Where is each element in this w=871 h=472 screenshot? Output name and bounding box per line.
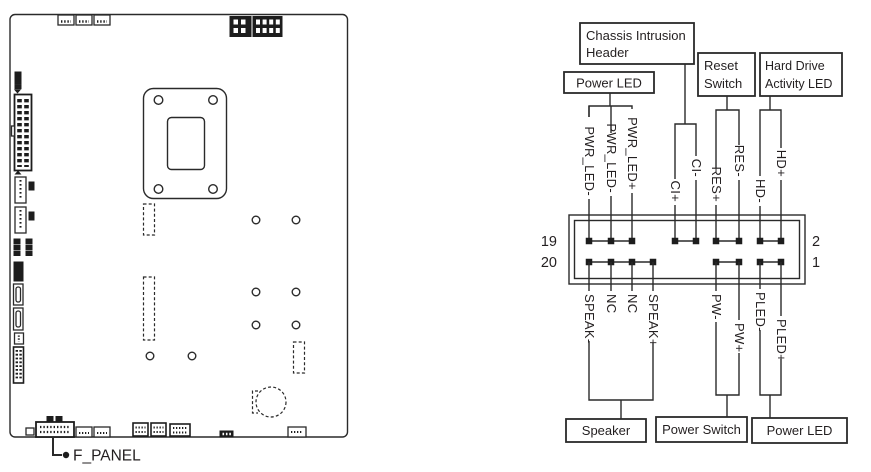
- usb-header: [15, 177, 34, 203]
- m2-slot-dashed: [294, 342, 305, 373]
- io-header: [170, 424, 190, 436]
- cpu-power-connectors: [230, 17, 282, 37]
- small-header: [26, 428, 34, 435]
- io-header: [288, 427, 306, 437]
- top-pin-labels: PWR_LED- PWR_LED- PWR_LED+ CI+ CI- RES+ …: [582, 117, 789, 203]
- motherboard-diagram: F_PANEL: [10, 15, 348, 465]
- mounting-holes: [146, 216, 300, 360]
- manual-figure: F_PANEL Chassis Intrusion Header Power L…: [0, 0, 871, 472]
- pin-label: PWR_LED-: [582, 126, 597, 196]
- svg-text:Activity LED: Activity LED: [765, 77, 832, 91]
- sata-connector: [14, 308, 24, 330]
- svg-text:Power Switch: Power Switch: [662, 422, 741, 437]
- motherboard-outline: [10, 15, 348, 438]
- bottom-edge-connectors: [26, 417, 306, 438]
- pin-label: NC: [625, 294, 640, 313]
- pcie-slot-dashed: [144, 277, 155, 340]
- svg-text:Header: Header: [586, 45, 629, 60]
- svg-text:Switch: Switch: [704, 76, 742, 91]
- pin-label: PLED-: [753, 292, 768, 332]
- f-panel-label: F_PANEL: [73, 448, 141, 465]
- f-panel-callout: F_PANEL: [53, 437, 141, 465]
- chassis-intrusion-box: Chassis Intrusion Header: [580, 23, 694, 64]
- m2-slot-dashed: [144, 204, 155, 235]
- callout-bullet: [63, 452, 69, 458]
- pin-label: PWR_LED+: [625, 117, 640, 190]
- svg-text:Speaker: Speaker: [582, 423, 631, 438]
- pin-label: SPEAK-: [582, 294, 597, 343]
- hdd-led-box: Hard Drive Activity LED: [760, 53, 842, 96]
- pin-strip: [15, 72, 21, 89]
- reset-switch-box: Reset Switch: [698, 53, 755, 96]
- marker-triangle: [14, 90, 21, 94]
- pin-number-20: 20: [541, 255, 557, 271]
- pin-header-block: [569, 215, 805, 284]
- cpu-socket: [144, 89, 227, 199]
- battery-dashed: [253, 387, 287, 417]
- io-header: [133, 423, 148, 436]
- small-header: [15, 333, 24, 344]
- pin-label: CI-: [689, 159, 704, 177]
- pin-row-top: [586, 238, 785, 245]
- pin-label: SPEAK+: [646, 294, 661, 347]
- pin-label: RES+: [709, 166, 724, 202]
- pin-label: HD-: [753, 179, 768, 203]
- pin-block: [14, 347, 24, 383]
- small-jumper: [220, 431, 233, 437]
- svg-text:Power LED: Power LED: [767, 423, 833, 438]
- usb-header: [15, 207, 34, 233]
- bottom-brackets: [589, 322, 781, 419]
- svg-text:Chassis Intrusion: Chassis Intrusion: [586, 28, 686, 43]
- svg-text:Power LED: Power LED: [576, 76, 642, 91]
- power-switch-box: Power Switch: [656, 417, 747, 442]
- io-header: [151, 423, 166, 436]
- pin-label: HD+: [774, 150, 789, 177]
- fpanel-pinout-diagram: Chassis Intrusion Header Power LED Reset…: [541, 23, 847, 443]
- sata-connector: [14, 284, 24, 305]
- pin-label: CI+: [668, 181, 683, 203]
- speaker-box: Speaker: [566, 419, 646, 442]
- jumper-blocks: [14, 239, 32, 256]
- figure-svg: F_PANEL Chassis Intrusion Header Power L…: [0, 0, 871, 472]
- fan-headers: [58, 15, 110, 25]
- pin-label: PW+: [732, 323, 747, 352]
- pin-number-19: 19: [541, 234, 557, 250]
- atx-24pin-power-connector: [12, 95, 32, 171]
- usb-header: [76, 427, 92, 437]
- pin-label: RES-: [732, 145, 747, 177]
- bottom-pin-labels: SPEAK- NC NC SPEAK+ PW- PW+ PLED- PLED+: [582, 292, 789, 362]
- pin-number-1: 1: [812, 255, 820, 271]
- m2-block: [14, 262, 23, 281]
- power-led-bottom-box: Power LED: [752, 418, 847, 443]
- svg-text:Hard Drive: Hard Drive: [765, 59, 825, 73]
- pin-label: PLED+: [774, 319, 789, 362]
- left-edge-components: [12, 72, 35, 383]
- pin-row-bottom: [586, 259, 785, 266]
- usb-header: [94, 427, 110, 437]
- pin-label: PW-: [709, 294, 724, 320]
- pin-label: NC: [604, 294, 619, 313]
- front-panel-connector: [36, 422, 74, 437]
- power-led-top-box: Power LED: [564, 72, 654, 93]
- pin-number-2: 2: [812, 234, 820, 250]
- svg-text:Reset: Reset: [704, 58, 738, 73]
- pin-label: PWR_LED-: [604, 123, 619, 193]
